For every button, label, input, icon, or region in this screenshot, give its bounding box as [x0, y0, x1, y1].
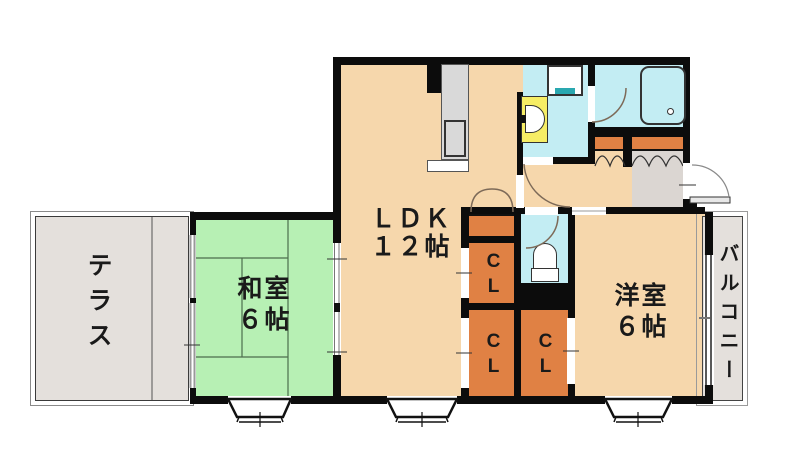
- label-washitsu-line1: 和室: [196, 274, 333, 305]
- bay-window-washitsu: [228, 399, 291, 427]
- label-terrace: テラス: [80, 252, 116, 357]
- bay-window-yoshitsu: [605, 399, 672, 427]
- toilet-door: [525, 207, 558, 248]
- label-washitsu-line2: ６帖: [196, 305, 333, 336]
- label-washitsu: 和室 ６帖: [196, 274, 333, 336]
- bathroom-door: [588, 86, 626, 122]
- washroom-door: [523, 157, 570, 207]
- label-closet-bottom-right: CL: [534, 331, 556, 381]
- ldk-hall-opening: [516, 175, 524, 208]
- label-ldk-line2: １２帖: [341, 233, 481, 261]
- yoshitsu-door: [572, 207, 606, 215]
- hall-closet-accordion-doors: [595, 156, 683, 166]
- label-ldk: ＬＤＫ １２帖: [341, 205, 481, 261]
- washitsu-window-1: [189, 235, 196, 298]
- closet-door-gaps: [456, 248, 579, 388]
- label-balcony: バルコニー: [713, 243, 742, 388]
- entrance-door: [679, 163, 730, 203]
- label-closet-bottom-left: CL: [482, 331, 504, 381]
- label-yoshitsu: 洋室 ６帖: [578, 281, 705, 343]
- label-yoshitsu-line2: ６帖: [578, 312, 705, 343]
- label-ldk-line1: ＬＤＫ: [341, 205, 481, 233]
- label-closet-top: CL: [482, 251, 504, 301]
- floor-plan: ＬＤＫ １２帖 和室 ６帖 洋室 ６帖 テラス バルコニー CL CL CL: [0, 0, 800, 458]
- label-yoshitsu-line1: 洋室: [578, 281, 705, 312]
- bay-window-ldk: [387, 399, 457, 427]
